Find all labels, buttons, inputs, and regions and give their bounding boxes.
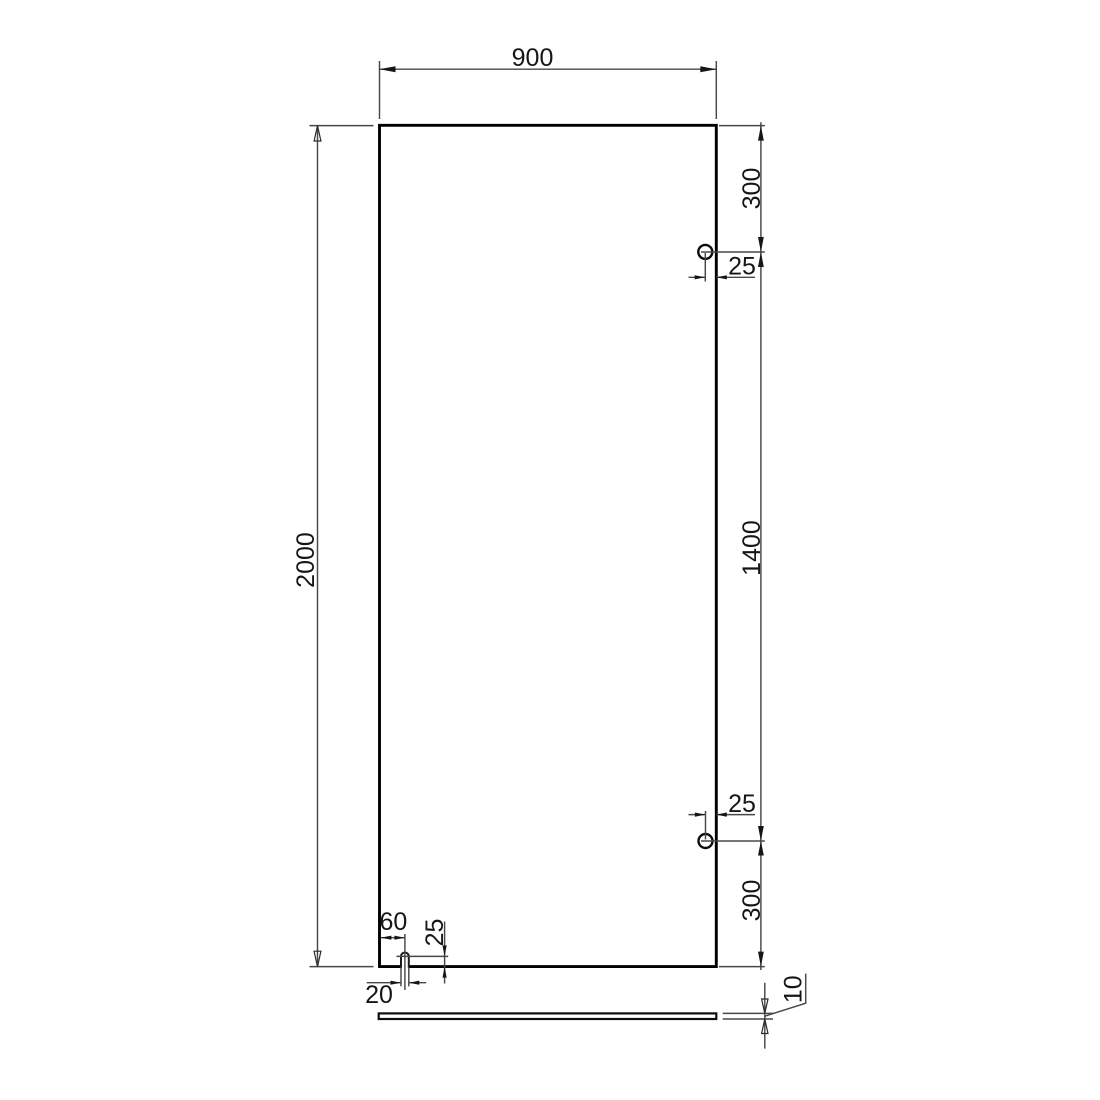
svg-text:300: 300 xyxy=(738,880,766,922)
svg-text:2000: 2000 xyxy=(292,532,320,588)
svg-text:60: 60 xyxy=(379,908,407,936)
svg-text:25: 25 xyxy=(728,253,756,281)
svg-text:10: 10 xyxy=(780,975,808,1003)
svg-text:300: 300 xyxy=(738,168,766,210)
svg-text:25: 25 xyxy=(421,919,449,947)
svg-text:20: 20 xyxy=(365,981,393,1009)
svg-text:1400: 1400 xyxy=(738,520,766,576)
svg-text:900: 900 xyxy=(512,44,554,72)
svg-text:25: 25 xyxy=(728,790,756,818)
